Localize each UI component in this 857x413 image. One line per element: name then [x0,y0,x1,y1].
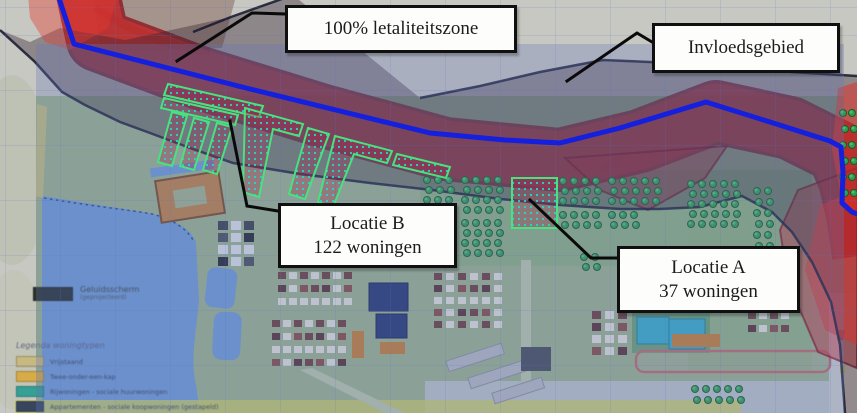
leader-letaliteitszone [177,13,285,61]
locatie-b-title: Locatie B [330,212,404,236]
callout-locatie-b: Locatie B 122 woningen [278,203,457,268]
callout-letaliteitszone: 100% letaliteitszone [285,5,517,53]
locatie-a-count: 37 woningen [659,280,758,304]
callout-invloedsgebied: Invloedsgebied [652,23,840,73]
locatie-b-count: 122 woningen [313,236,421,260]
risk-zone-map-figure: Geluidsscherm (geprojecteerd) Legenda wo… [0,0,857,413]
callout-locatie-a: Locatie A 37 woningen [617,246,800,313]
leader-invloedsgebied [567,33,652,81]
callout-invloedsgebied-text: Invloedsgebied [688,36,804,60]
locatie-a-title: Locatie A [671,256,745,280]
callout-letaliteitszone-text: 100% letaliteitszone [324,17,479,41]
